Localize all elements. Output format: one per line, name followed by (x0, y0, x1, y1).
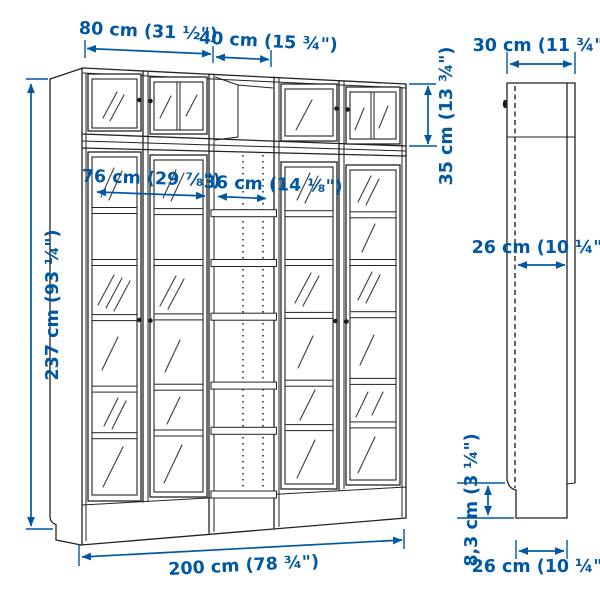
dim-label-200cm: 200 cm (78 ¾") (168, 552, 320, 580)
side-view (503, 83, 575, 518)
extension-glass-doors (88, 74, 400, 144)
dim-label-36cm: 36 cm (14 ⅛") (203, 173, 342, 198)
main-glass-doors (88, 152, 400, 501)
dim-label-30cm: 30 cm (11 ¾") (473, 36, 600, 56)
open-top-compartment (215, 77, 273, 140)
dim-total-height: 237 cm (93 ¼") (26, 79, 63, 529)
dim-depth-top: 30 cm (11 ¾") (473, 36, 600, 74)
dim-label-237cm: 237 cm (93 ¼") (43, 230, 63, 381)
dim-label-26cm-mid: 26 cm (10 ¼") (472, 238, 600, 258)
dim-label-40cm: 40 cm (15 ¾") (198, 28, 338, 55)
diagram-canvas: 80 cm (31 ½") 40 cm (15 ¾") 76 cm (29 ⅞"… (0, 0, 600, 600)
dim-label-80cm: 80 cm (31 ½") (78, 19, 218, 46)
dim-label-35cm: 35 cm (13 ¾") (437, 47, 457, 186)
dim-left-unit-width: 80 cm (31 ½") (78, 19, 218, 63)
dim-middle-unit-width: 40 cm (15 ¾") (198, 28, 338, 67)
dim-plinth-height: 8,3 cm (3 ¼") (457, 433, 514, 566)
side-view-outline (503, 83, 575, 518)
furniture-dimension-diagram: 80 cm (31 ½") 40 cm (15 ¾") 76 cm (29 ⅞"… (0, 0, 600, 600)
dim-middle-unit-inner-width: 36 cm (14 ⅛") (203, 173, 342, 199)
dim-depth-bottom: 26 cm (10 ¼") (472, 540, 600, 577)
dim-label-8-3cm: 8,3 cm (3 ¼") (462, 433, 482, 566)
dim-extension-height: 35 cm (13 ¾") (409, 47, 457, 186)
dim-depth-inner: 26 cm (10 ¼") (472, 238, 600, 265)
dim-label-26cm-bottom: 26 cm (10 ¼") (472, 557, 600, 577)
side-door-knob (503, 100, 507, 108)
front-view (50, 68, 406, 545)
dim-total-width: 200 cm (78 ¾") (79, 529, 404, 580)
